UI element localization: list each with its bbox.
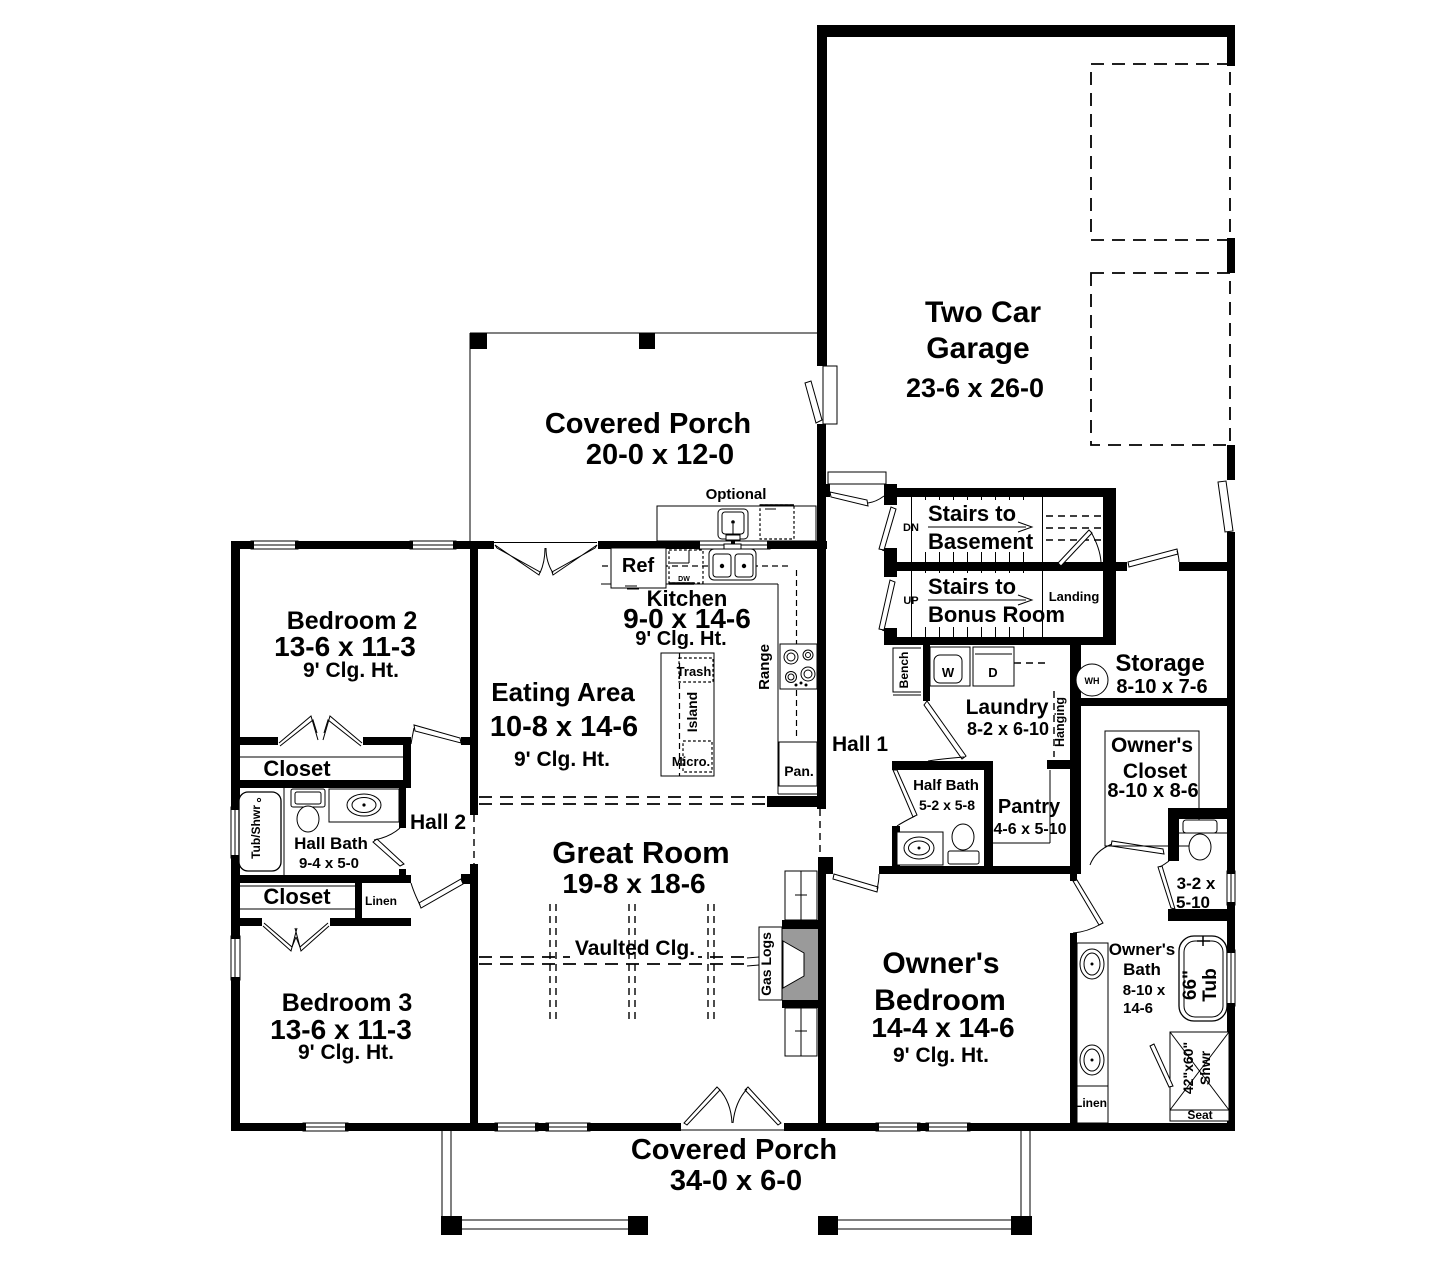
svg-text:DW: DW — [678, 576, 690, 583]
svg-text:Tub/Shwr: Tub/Shwr — [249, 805, 263, 859]
svg-text:D: D — [988, 665, 997, 680]
svg-text:Owner's: Owner's — [882, 947, 999, 980]
svg-text:9' Clg. Ht.: 9' Clg. Ht. — [303, 659, 399, 682]
svg-text:Pan.: Pan. — [784, 763, 814, 779]
svg-text:20-0 x 12-0: 20-0 x 12-0 — [586, 439, 734, 471]
svg-text:66": 66" — [1180, 970, 1201, 1000]
svg-text:Eating Area: Eating Area — [491, 677, 635, 707]
svg-text:Gas Logs: Gas Logs — [758, 932, 774, 996]
svg-text:8-10 x 7-6: 8-10 x 7-6 — [1116, 676, 1207, 698]
svg-text:Linen: Linen — [1075, 1096, 1107, 1110]
svg-text:9' Clg. Ht.: 9' Clg. Ht. — [635, 628, 726, 650]
svg-text:Covered Porch: Covered Porch — [545, 408, 751, 440]
svg-text:Pantry: Pantry — [998, 796, 1061, 818]
svg-text:9' Clg. Ht.: 9' Clg. Ht. — [893, 1044, 989, 1067]
svg-text:19-8 x 18-6: 19-8 x 18-6 — [562, 868, 705, 899]
svg-text:23-6 x 26-0: 23-6 x 26-0 — [906, 373, 1044, 403]
svg-text:Bath: Bath — [1123, 960, 1161, 979]
svg-text:Bench: Bench — [897, 652, 911, 689]
svg-text:Laundry: Laundry — [966, 696, 1049, 719]
svg-text:Stairs to: Stairs to — [928, 574, 1016, 599]
svg-text:Tub: Tub — [1200, 968, 1221, 1001]
svg-text:Optional: Optional — [706, 486, 767, 503]
svg-text:5-10: 5-10 — [1176, 893, 1210, 912]
svg-text:8-10 x: 8-10 x — [1123, 982, 1166, 999]
svg-text:8-2 x 6-10: 8-2 x 6-10 — [967, 719, 1049, 739]
svg-text:13-6 x 11-3: 13-6 x 11-3 — [274, 631, 416, 662]
svg-text:34-0 x 6-0: 34-0 x 6-0 — [670, 1165, 802, 1197]
svg-text:Hall Bath: Hall Bath — [294, 834, 368, 853]
svg-text:Storage: Storage — [1115, 650, 1204, 677]
svg-text:3-2 x: 3-2 x — [1177, 874, 1216, 893]
svg-text:DN: DN — [903, 522, 919, 534]
svg-text:Linen: Linen — [365, 894, 397, 908]
svg-text:42"x60": 42"x60" — [1180, 1042, 1196, 1094]
svg-text:9' Clg. Ht.: 9' Clg. Ht. — [298, 1041, 394, 1064]
svg-text:Island: Island — [684, 692, 700, 732]
svg-text:9-4 x 5-0: 9-4 x 5-0 — [299, 855, 359, 872]
svg-text:Basement: Basement — [928, 529, 1034, 554]
svg-text:14-4 x 14-6: 14-4 x 14-6 — [871, 1012, 1014, 1043]
svg-text:5-2 x 5-8: 5-2 x 5-8 — [919, 797, 975, 813]
svg-text:Covered Porch: Covered Porch — [631, 1134, 837, 1166]
svg-text:Two Car: Two Car — [925, 296, 1041, 329]
svg-text:Closet: Closet — [263, 756, 331, 781]
svg-text:Seat: Seat — [1187, 1108, 1212, 1122]
svg-text:10-8 x 14-6: 10-8 x 14-6 — [490, 711, 638, 743]
svg-text:Closet: Closet — [263, 884, 331, 909]
svg-text:WH: WH — [1085, 676, 1100, 686]
svg-text:Stairs to: Stairs to — [928, 501, 1016, 526]
svg-text:8-10 x 8-6: 8-10 x 8-6 — [1107, 780, 1198, 802]
svg-text:Owner's: Owner's — [1111, 734, 1193, 757]
svg-text:Hall 1: Hall 1 — [832, 733, 888, 756]
svg-text:Range: Range — [756, 644, 773, 690]
svg-text:Shwr: Shwr — [1197, 1050, 1213, 1085]
svg-text:9' Clg. Ht.: 9' Clg. Ht. — [514, 748, 610, 771]
svg-text:Hall 2: Hall 2 — [410, 811, 466, 834]
svg-text:Great Room: Great Room — [552, 835, 729, 870]
svg-text:Bedroom 3: Bedroom 3 — [282, 989, 413, 1017]
svg-text:Owner's: Owner's — [1109, 940, 1175, 959]
svg-text:Trash: Trash — [677, 664, 712, 679]
svg-text:Landing: Landing — [1049, 589, 1100, 604]
svg-text:4-6 x 5-10: 4-6 x 5-10 — [994, 821, 1067, 838]
svg-text:Garage: Garage — [926, 332, 1029, 365]
svg-text:Ref: Ref — [622, 555, 655, 577]
svg-text:14-6: 14-6 — [1123, 1000, 1153, 1017]
svg-text:W: W — [942, 665, 955, 680]
svg-text:Bonus Room: Bonus Room — [928, 602, 1065, 627]
svg-text:Micro.: Micro. — [672, 754, 710, 769]
svg-text:Hanging: Hanging — [1053, 697, 1067, 747]
svg-text:Half Bath: Half Bath — [913, 777, 979, 794]
svg-text:UP: UP — [903, 595, 918, 607]
